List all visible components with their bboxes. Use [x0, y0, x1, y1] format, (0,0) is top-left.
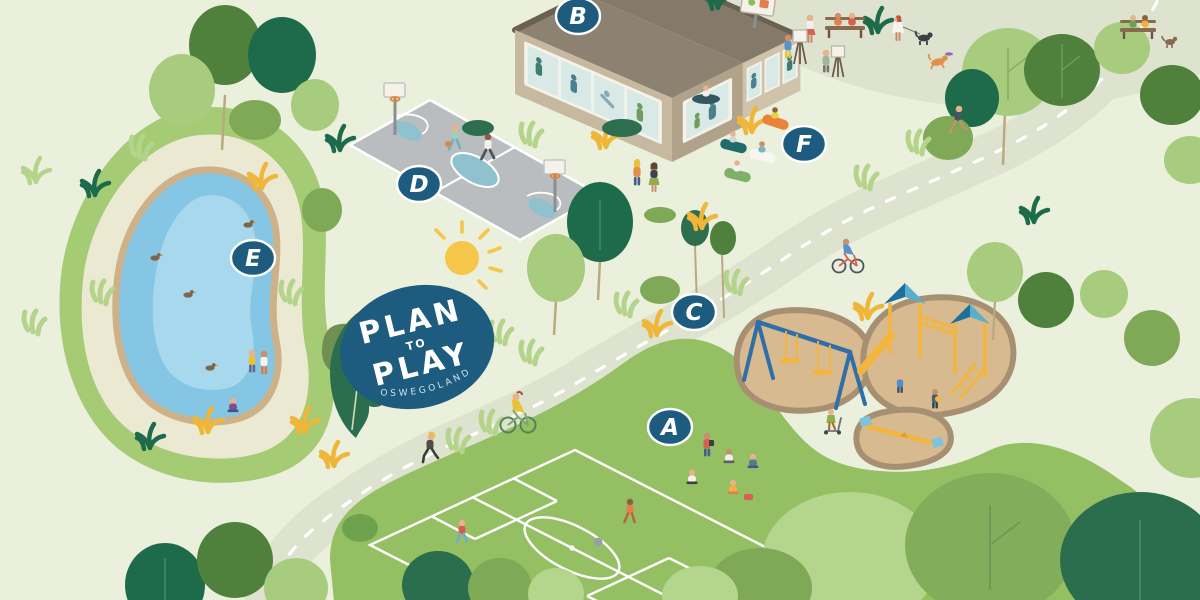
soccer-ball — [594, 538, 603, 547]
svg-text:A: A — [659, 415, 679, 441]
marker-d[interactable]: D — [397, 166, 441, 202]
svg-text:E: E — [245, 246, 261, 272]
park-map: PLAN TO PLAY OSWEGOLAND A B C D E — [0, 0, 1200, 600]
frisbee — [945, 52, 953, 55]
marker-f[interactable]: F — [782, 126, 826, 162]
svg-text:C: C — [686, 300, 703, 326]
svg-text:F: F — [796, 132, 812, 158]
marker-a[interactable]: A — [648, 409, 692, 445]
svg-text:D: D — [409, 172, 428, 198]
marker-b[interactable]: B — [556, 0, 600, 34]
backpack — [744, 494, 753, 500]
marker-c[interactable]: C — [672, 294, 716, 330]
svg-text:B: B — [569, 4, 587, 30]
marker-e[interactable]: E — [231, 240, 275, 276]
